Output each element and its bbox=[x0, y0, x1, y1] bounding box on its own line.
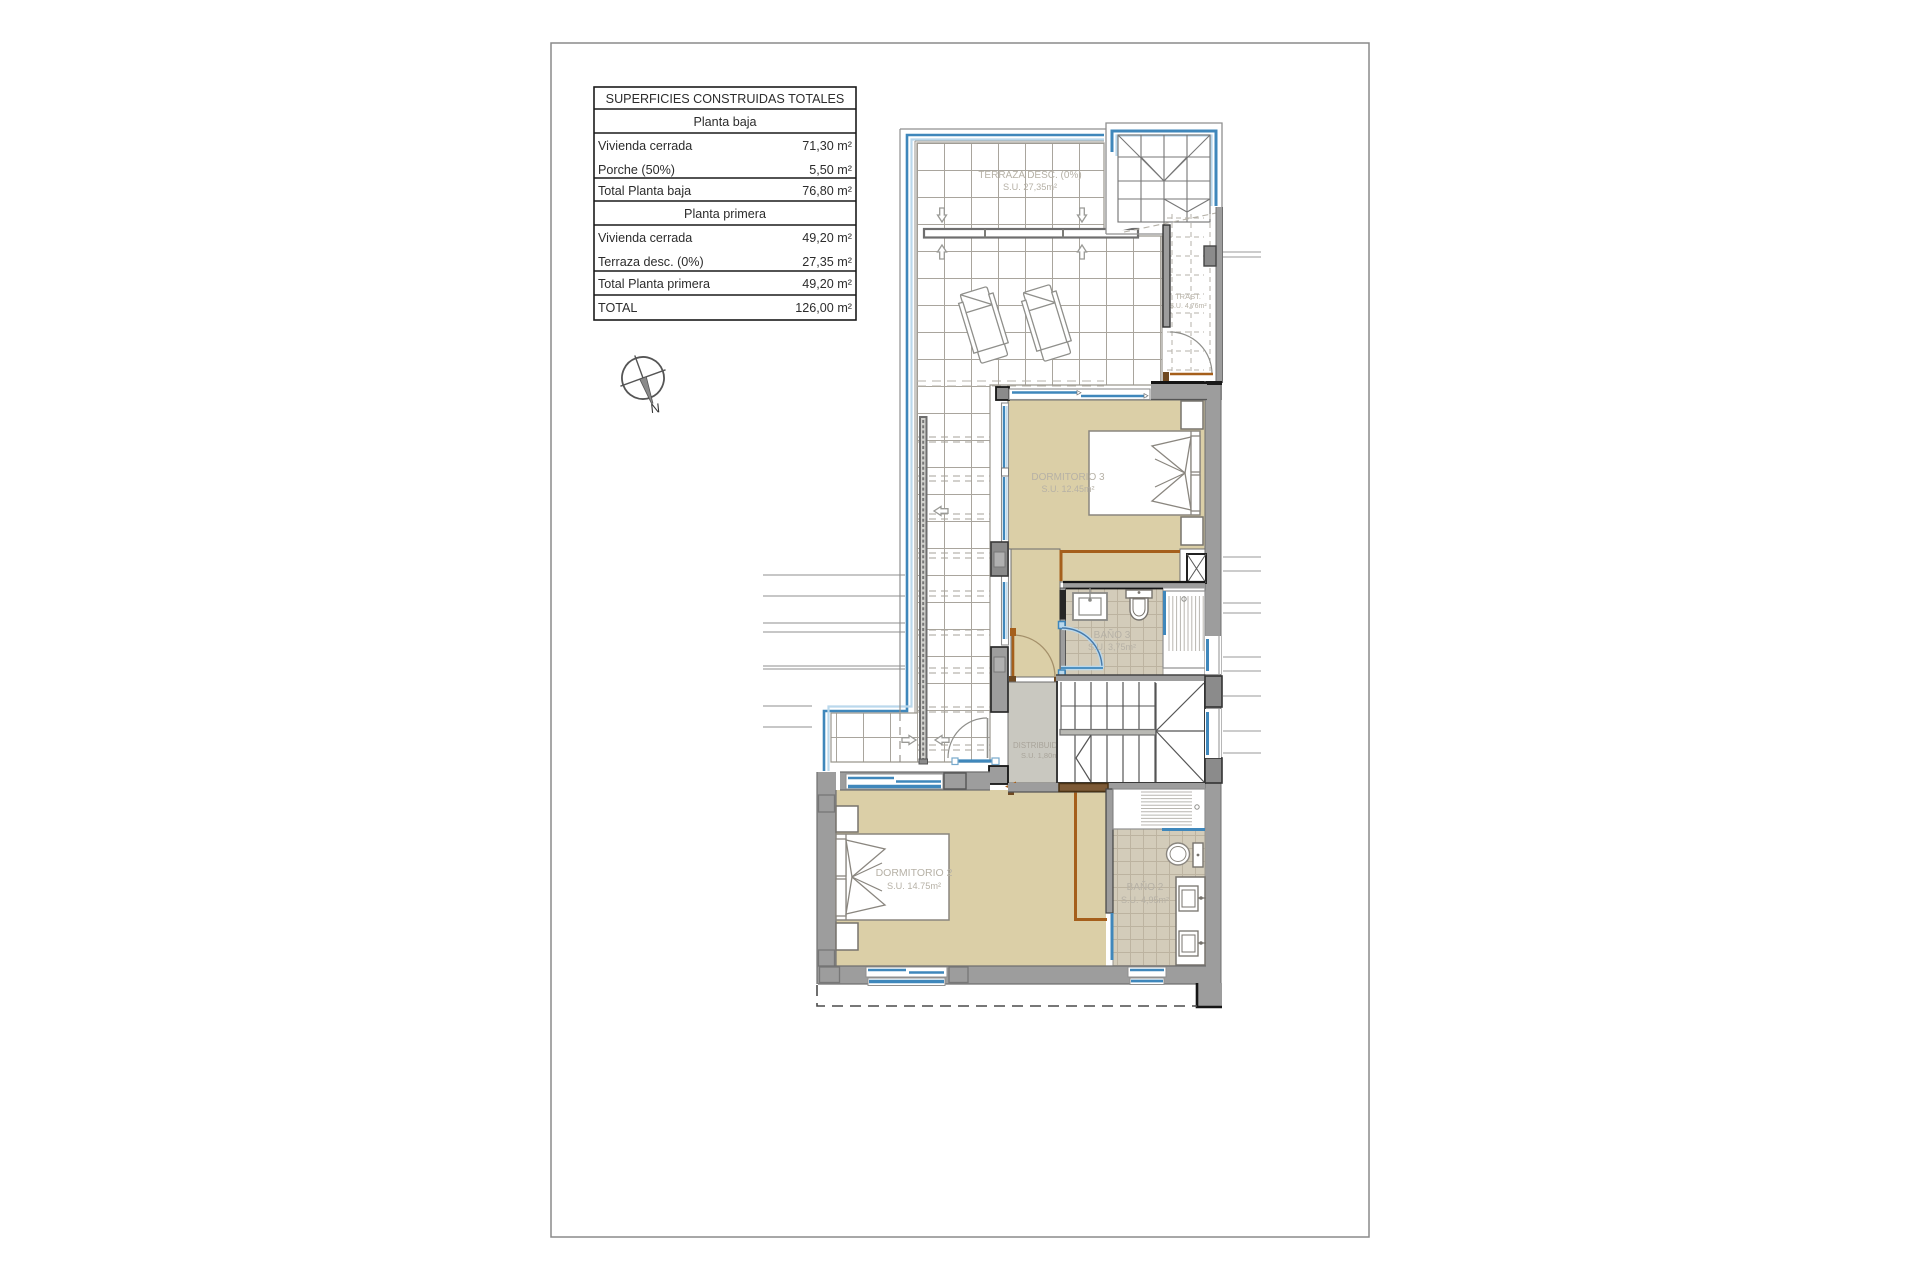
svg-text:TOTAL: TOTAL bbox=[598, 301, 637, 315]
svg-text:BAÑO 3: BAÑO 3 bbox=[1094, 628, 1131, 641]
svg-text:27,35 m²: 27,35 m² bbox=[802, 255, 852, 269]
svg-text:Planta baja: Planta baja bbox=[693, 115, 756, 129]
svg-text:TERRAZA DESC. (0%): TERRAZA DESC. (0%) bbox=[978, 170, 1081, 181]
svg-text:Total Planta baja: Total Planta baja bbox=[598, 184, 691, 198]
svg-text:DORMITORIO 3: DORMITORIO 3 bbox=[1031, 472, 1105, 483]
svg-text:DORMITORIO 2: DORMITORIO 2 bbox=[876, 867, 953, 879]
svg-text:SUPERFICIES CONSTRUIDAS TOTALE: SUPERFICIES CONSTRUIDAS TOTALES bbox=[606, 92, 845, 106]
svg-text:49,20 m²: 49,20 m² bbox=[802, 231, 852, 245]
svg-text:S.U. 4,95m²: S.U. 4,95m² bbox=[1121, 895, 1169, 905]
svg-text:S.U. 14.75m²: S.U. 14.75m² bbox=[887, 881, 941, 891]
svg-text:Vivienda cerrada: Vivienda cerrada bbox=[598, 139, 692, 153]
svg-text:Terraza desc. (0%): Terraza desc. (0%) bbox=[598, 255, 704, 269]
svg-text:S.U. 27,35m²: S.U. 27,35m² bbox=[1003, 182, 1057, 192]
svg-text:5,50 m²: 5,50 m² bbox=[809, 163, 852, 177]
svg-text:126,00 m²: 126,00 m² bbox=[795, 301, 852, 315]
svg-text:S.U. 3,75m²: S.U. 3,75m² bbox=[1088, 642, 1136, 652]
svg-text:S.U. 4,76m²: S.U. 4,76m² bbox=[1169, 303, 1207, 310]
svg-text:Vivienda cerrada: Vivienda cerrada bbox=[598, 231, 692, 245]
svg-text:71,30 m²: 71,30 m² bbox=[802, 139, 852, 153]
svg-text:Porche (50%): Porche (50%) bbox=[598, 163, 675, 177]
svg-text:TRAST.: TRAST. bbox=[1175, 292, 1201, 301]
svg-text:S.U. 12.45m²: S.U. 12.45m² bbox=[1041, 484, 1094, 494]
svg-text:BAÑO 2: BAÑO 2 bbox=[1127, 880, 1164, 893]
svg-text:N: N bbox=[650, 400, 661, 416]
svg-text:S.U. 1,80m²: S.U. 1,80m² bbox=[1021, 751, 1062, 760]
svg-text:76,80 m²: 76,80 m² bbox=[802, 184, 852, 198]
svg-text:49,20 m²: 49,20 m² bbox=[802, 277, 852, 291]
svg-text:Total Planta primera: Total Planta primera bbox=[598, 277, 710, 291]
svg-text:Planta primera: Planta primera bbox=[684, 207, 766, 221]
